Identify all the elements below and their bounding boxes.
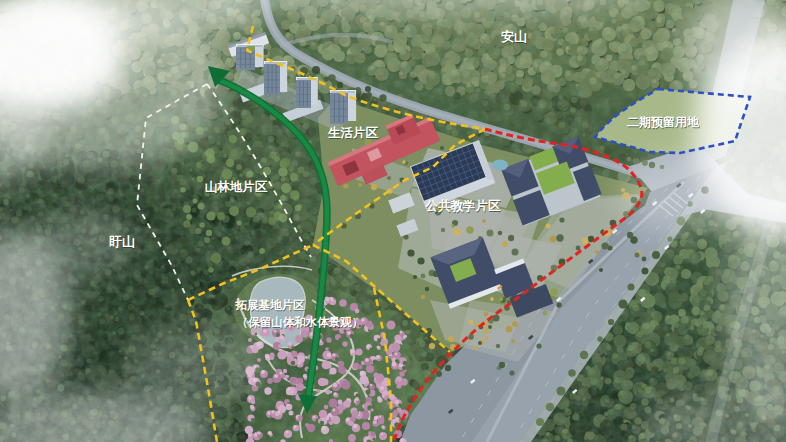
svg-text:公共教学片区: 公共教学片区 [425, 199, 502, 213]
svg-text:盱山: 盱山 [109, 234, 135, 249]
svg-text:山林地片区: 山林地片区 [205, 180, 268, 194]
svg-text:安山: 安山 [501, 29, 527, 44]
svg-text:二期预留用地: 二期预留用地 [627, 115, 700, 129]
svg-text:（保留山体和水体景观）: （保留山体和水体景观） [237, 315, 364, 329]
svg-text:生活片区: 生活片区 [327, 126, 379, 140]
svg-text:拓展基地片区: 拓展基地片区 [235, 299, 306, 312]
